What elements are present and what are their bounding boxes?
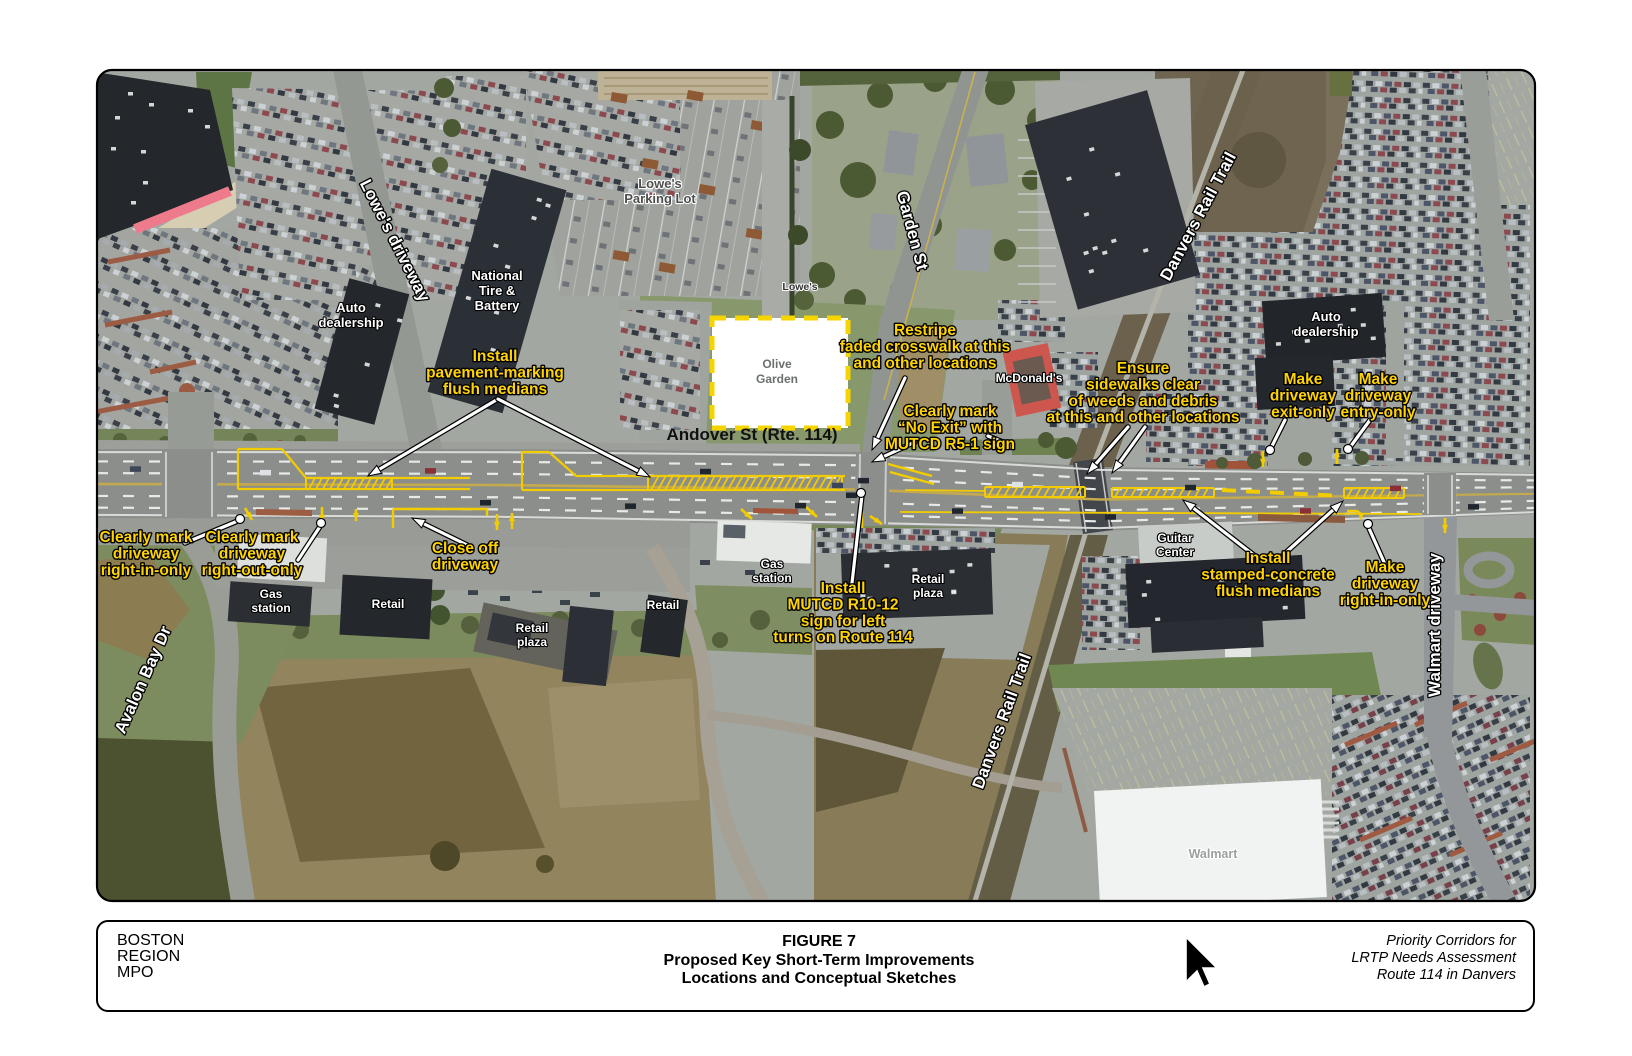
svg-text:sidewalks clear: sidewalks clear bbox=[1086, 376, 1200, 393]
svg-text:Close off: Close off bbox=[432, 540, 499, 557]
svg-text:Olive: Olive bbox=[762, 357, 792, 371]
svg-text:exit-only: exit-only bbox=[1271, 404, 1335, 421]
svg-text:Proposed Key Short-Term Improv: Proposed Key Short-Term Improvements bbox=[664, 952, 975, 969]
svg-text:driveway: driveway bbox=[432, 556, 499, 573]
svg-text:Make: Make bbox=[1284, 371, 1323, 388]
svg-text:FIGURE 7: FIGURE 7 bbox=[782, 933, 856, 950]
svg-text:Clearly mark: Clearly mark bbox=[903, 403, 996, 420]
svg-text:plaza: plaza bbox=[517, 635, 547, 649]
svg-text:Retail: Retail bbox=[912, 572, 945, 586]
svg-text:flush medians: flush medians bbox=[443, 381, 547, 398]
svg-text:right-in-only: right-in-only bbox=[1340, 592, 1431, 609]
svg-text:Install: Install bbox=[1246, 550, 1291, 567]
svg-text:station: station bbox=[752, 571, 791, 585]
svg-text:dealership: dealership bbox=[1293, 324, 1358, 339]
svg-text:Clearly mark: Clearly mark bbox=[99, 529, 192, 546]
svg-text:driveway: driveway bbox=[113, 545, 180, 562]
svg-text:Ensure: Ensure bbox=[1117, 360, 1170, 377]
svg-text:MPO: MPO bbox=[117, 964, 153, 981]
svg-text:Make: Make bbox=[1366, 559, 1405, 576]
svg-text:right-in-only: right-in-only bbox=[101, 562, 192, 579]
svg-text:Retail: Retail bbox=[647, 598, 680, 612]
svg-text:of weeds and debris: of weeds and debris bbox=[1068, 393, 1217, 410]
svg-text:Auto: Auto bbox=[336, 300, 366, 315]
svg-text:Walmart: Walmart bbox=[1189, 847, 1239, 861]
svg-text:turns on Route 114: turns on Route 114 bbox=[773, 629, 913, 646]
svg-text:LRTP Needs Assessment: LRTP Needs Assessment bbox=[1351, 950, 1517, 966]
svg-text:McDonald's: McDonald's bbox=[996, 371, 1063, 385]
svg-text:driveway: driveway bbox=[1345, 387, 1412, 404]
svg-text:station: station bbox=[251, 601, 290, 615]
svg-text:stamped-concrete: stamped-concrete bbox=[1201, 566, 1335, 583]
svg-text:flush medians: flush medians bbox=[1216, 583, 1320, 600]
svg-text:Install: Install bbox=[473, 348, 518, 365]
svg-text:Walmart driveway: Walmart driveway bbox=[1425, 552, 1444, 696]
svg-text:right-out-only: right-out-only bbox=[202, 562, 303, 579]
svg-text:REGION: REGION bbox=[117, 948, 180, 965]
svg-text:faded crosswalk at this: faded crosswalk at this bbox=[840, 338, 1011, 355]
svg-text:Restripe: Restripe bbox=[894, 322, 956, 339]
svg-text:plaza: plaza bbox=[913, 586, 943, 600]
svg-text:Install: Install bbox=[821, 580, 866, 597]
svg-text:Route 114 in Danvers: Route 114 in Danvers bbox=[1377, 967, 1516, 983]
svg-text:Retail: Retail bbox=[516, 621, 549, 635]
svg-text:Andover St (Rte. 114): Andover St (Rte. 114) bbox=[667, 425, 838, 444]
svg-text:MUTCD R5-1 sign: MUTCD R5-1 sign bbox=[885, 436, 1015, 453]
svg-text:BOSTON: BOSTON bbox=[117, 932, 184, 949]
svg-text:Battery: Battery bbox=[475, 298, 521, 313]
svg-text:Guitar: Guitar bbox=[1157, 531, 1193, 545]
svg-text:Auto: Auto bbox=[1311, 309, 1341, 324]
svg-text:driveway: driveway bbox=[1352, 575, 1419, 592]
svg-text:Lowe's: Lowe's bbox=[782, 281, 817, 293]
svg-text:MUTCD R10-12: MUTCD R10-12 bbox=[787, 596, 898, 613]
svg-text:Center: Center bbox=[1156, 545, 1194, 559]
svg-text:Gas: Gas bbox=[761, 557, 784, 571]
svg-text:at this and other locations: at this and other locations bbox=[1047, 409, 1240, 426]
svg-text:National: National bbox=[471, 268, 522, 283]
svg-text:Lowe's: Lowe's bbox=[638, 176, 682, 191]
svg-text:driveway: driveway bbox=[1270, 387, 1337, 404]
svg-text:Tire &: Tire & bbox=[479, 283, 516, 298]
svg-text:entry-only: entry-only bbox=[1341, 404, 1416, 421]
svg-text:sign for left: sign for left bbox=[801, 613, 885, 630]
svg-text:driveway: driveway bbox=[219, 545, 286, 562]
svg-text:Locations and Conceptual Sketc: Locations and Conceptual Sketches bbox=[682, 970, 957, 987]
svg-text:Clearly mark: Clearly mark bbox=[205, 529, 298, 546]
svg-text:Priority Corridors for: Priority Corridors for bbox=[1386, 933, 1517, 949]
svg-text:Gas: Gas bbox=[260, 587, 283, 601]
svg-text:Make: Make bbox=[1359, 371, 1398, 388]
svg-text:dealership: dealership bbox=[318, 315, 383, 330]
svg-text:and other locations: and other locations bbox=[854, 355, 997, 372]
svg-text:Garden: Garden bbox=[756, 372, 798, 386]
svg-text:“No Exit” with: “No Exit” with bbox=[898, 419, 1002, 436]
svg-text:Parking Lot: Parking Lot bbox=[624, 191, 696, 206]
svg-text:pavement-marking: pavement-marking bbox=[426, 364, 564, 381]
svg-text:Retail: Retail bbox=[372, 597, 405, 611]
